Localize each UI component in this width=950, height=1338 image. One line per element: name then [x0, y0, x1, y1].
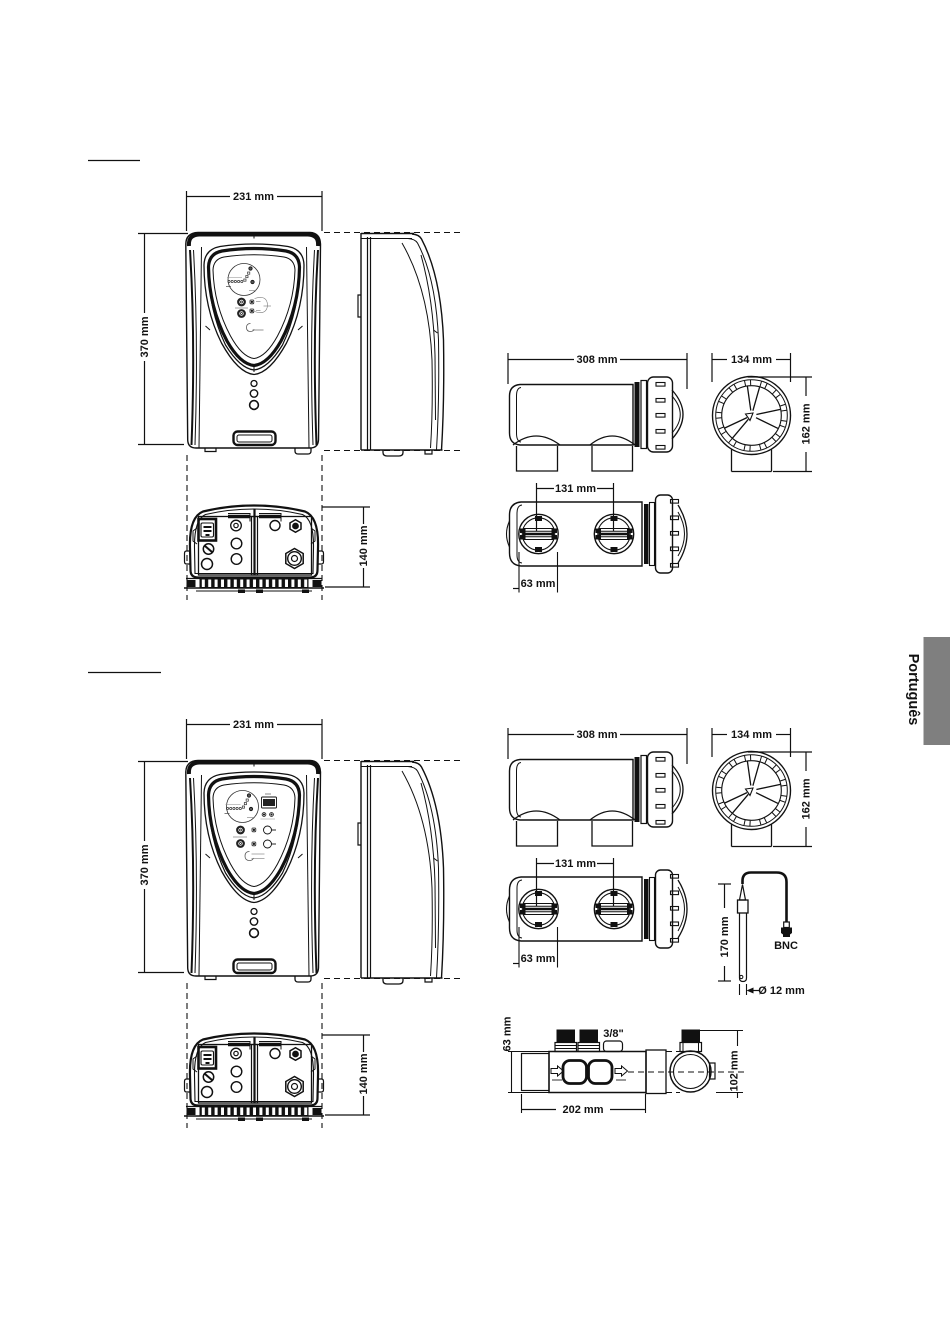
svg-text:134 mm: 134 mm [731, 729, 772, 741]
svg-text:63 mm: 63 mm [521, 578, 556, 590]
svg-text:131 mm: 131 mm [555, 858, 596, 870]
svg-text:Ø 12 mm: Ø 12 mm [758, 985, 805, 997]
svg-text:202 mm: 202 mm [563, 1104, 604, 1116]
svg-text:370 mm: 370 mm [139, 316, 151, 357]
svg-text:63 mm: 63 mm [521, 953, 556, 965]
svg-text:308 mm: 308 mm [577, 729, 618, 741]
svg-text:170 mm: 170 mm [719, 916, 731, 957]
svg-text:131 mm: 131 mm [555, 483, 596, 495]
svg-text:3/8": 3/8" [603, 1028, 624, 1040]
svg-text:162 mm: 162 mm [801, 778, 813, 819]
svg-text:370 mm: 370 mm [139, 844, 151, 885]
svg-text:102 mm: 102 mm [729, 1050, 741, 1091]
svg-text:Português: Português [905, 654, 921, 726]
svg-text:231 mm: 231 mm [233, 191, 274, 203]
svg-text:134 mm: 134 mm [731, 354, 772, 366]
svg-text:308 mm: 308 mm [577, 354, 618, 366]
svg-text:231 mm: 231 mm [233, 719, 274, 731]
svg-text:BNC: BNC [774, 940, 798, 952]
svg-text:140 mm: 140 mm [358, 525, 370, 566]
svg-text:162 mm: 162 mm [801, 403, 813, 444]
svg-text:63 mm: 63 mm [502, 1016, 514, 1051]
svg-text:140 mm: 140 mm [358, 1053, 370, 1094]
